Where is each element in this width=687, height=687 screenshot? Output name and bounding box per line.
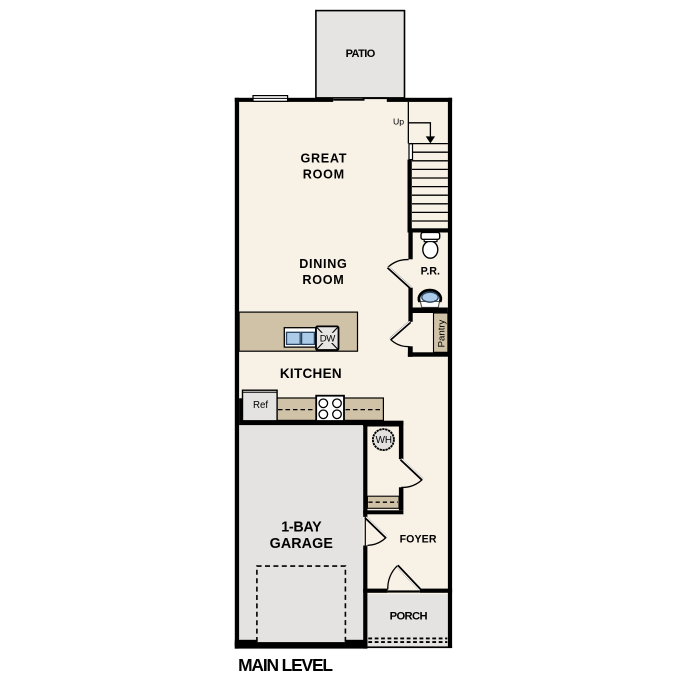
svg-text:GREAT: GREAT — [300, 151, 347, 165]
svg-text:P.R.: P.R. — [421, 265, 440, 277]
svg-text:ROOM: ROOM — [303, 168, 345, 182]
svg-text:FOYER: FOYER — [400, 533, 437, 545]
svg-text:PATIO: PATIO — [346, 48, 376, 60]
svg-text:Ref: Ref — [253, 400, 268, 411]
svg-text:PORCH: PORCH — [390, 611, 428, 623]
svg-text:DINING: DINING — [299, 257, 347, 271]
svg-text:1-BAY: 1-BAY — [281, 519, 322, 535]
svg-text:MAIN LEVEL: MAIN LEVEL — [238, 655, 333, 675]
svg-text:WH: WH — [376, 435, 392, 446]
svg-text:Pantry: Pantry — [436, 319, 447, 347]
svg-text:KITCHEN: KITCHEN — [280, 366, 342, 381]
svg-text:GARAGE: GARAGE — [270, 536, 333, 552]
svg-text:Up: Up — [393, 117, 404, 127]
svg-text:ROOM: ROOM — [302, 273, 344, 287]
svg-text:DW: DW — [320, 334, 336, 345]
